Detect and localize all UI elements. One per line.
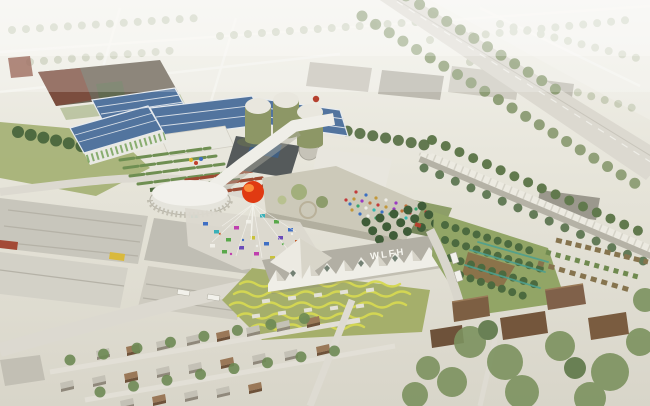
red-tower <box>313 96 319 102</box>
silo-dome-2 <box>273 92 299 108</box>
aerial-render: WLFH <box>0 0 650 406</box>
red-balloon <box>242 181 264 203</box>
silo-dome-1 <box>245 98 271 114</box>
balloon-highlight <box>244 184 254 192</box>
